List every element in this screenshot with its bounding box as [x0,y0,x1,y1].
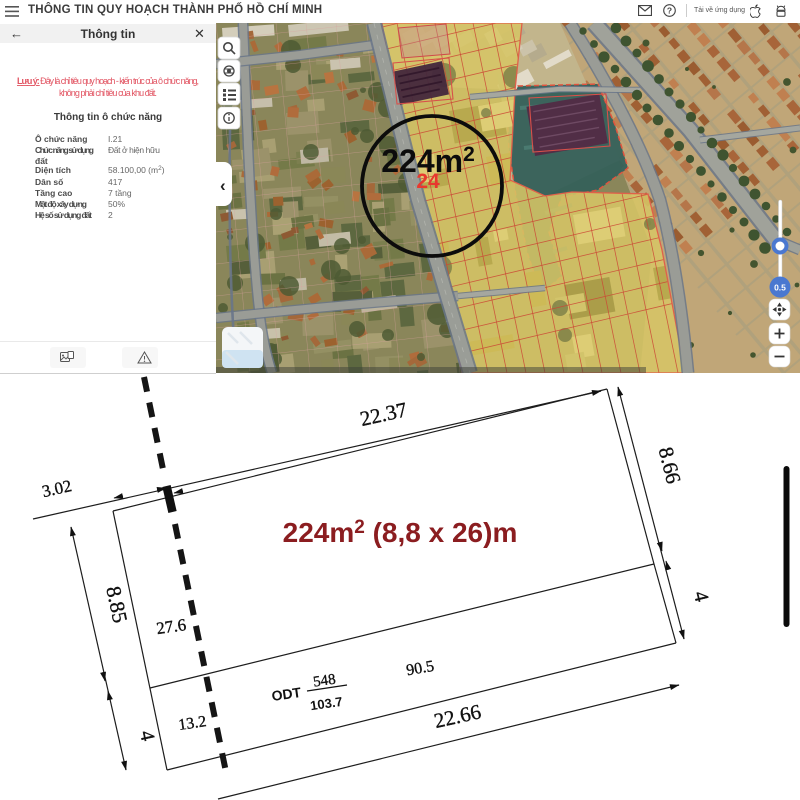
svg-text:50%: 50% [108,199,125,209]
svg-text:Tầng cao: Tầng cao [35,188,72,198]
svg-text:Mật độ xây dựng: Mật độ xây dựng [35,199,87,209]
svg-text:Lưu ý: Đây là chỉ tiêu quy hoạ: Lưu ý: Đây là chỉ tiêu quy hoạch - kiến … [17,76,199,86]
svg-text:224m2 (8,8 x 26)m: 224m2 (8,8 x 26)m [283,517,518,548]
svg-text:Dân số: Dân số [35,177,63,187]
svg-text:4: 4 [135,729,159,743]
svg-text:Chức năng sử dụng: Chức năng sử dụng [35,145,94,155]
svg-text:22.66: 22.66 [432,699,483,733]
svg-text:4: 4 [689,589,713,604]
svg-text:Diện tích: Diện tích [35,165,71,175]
svg-text:7 tầng: 7 tầng [108,188,132,198]
svg-text:Ô chức năng: Ô chức năng [35,133,87,144]
svg-text:2: 2 [108,210,113,220]
svg-text:90.5: 90.5 [405,658,436,680]
svg-text:3.02: 3.02 [40,476,73,501]
svg-text:Đất ở hiện hữu: Đất ở hiện hữu [108,145,160,155]
svg-text:13.2: 13.2 [177,713,207,734]
svg-text:27.6: 27.6 [155,615,187,638]
svg-text:không phải chỉ tiêu của khu đấ: không phải chỉ tiêu của khu đất. [59,88,157,98]
svg-text:?: ? [667,5,672,15]
svg-text:417: 417 [108,177,122,187]
svg-text:Hệ số sử dụng đất: Hệ số sử dụng đất [35,210,92,220]
svg-text:ODT: ODT [271,684,303,704]
svg-text:58.100,00 (m2): 58.100,00 (m2) [108,165,165,175]
svg-text:Thông tin ô chức năng: Thông tin ô chức năng [54,112,162,123]
svg-text:22.37: 22.37 [358,397,409,431]
svg-text:8.66: 8.66 [654,445,686,486]
svg-text:8.85: 8.85 [101,584,132,625]
svg-text:224m2: 224m2 [381,143,475,179]
svg-text:103.7: 103.7 [309,694,343,713]
svg-text:‹: ‹ [220,176,226,195]
svg-text:0.5: 0.5 [774,283,786,293]
svg-text:I.21: I.21 [108,134,122,144]
